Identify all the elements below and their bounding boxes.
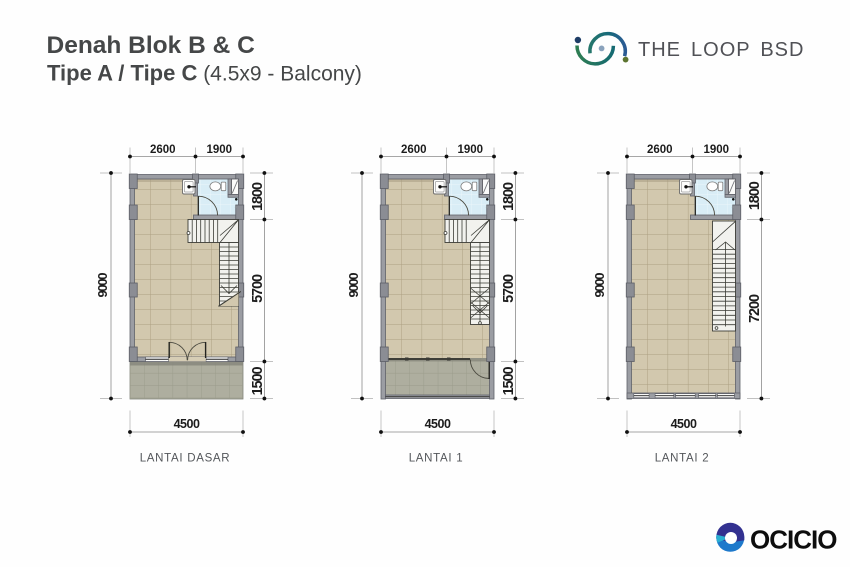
svg-text:Denah Blok B & C: Denah Blok B & C [47,32,256,59]
svg-text:2600: 2600 [647,144,673,156]
svg-text:LANTAI 1: LANTAI 1 [409,453,464,465]
svg-text:9000: 9000 [95,273,110,298]
svg-text:1900: 1900 [206,144,232,156]
svg-text:4500: 4500 [425,417,451,431]
svg-text:1800: 1800 [747,181,763,210]
svg-text:1800: 1800 [250,182,266,211]
svg-text:1500: 1500 [501,367,517,396]
svg-text:2600: 2600 [150,144,176,156]
svg-text:Tipe A / Tipe C (4.5x9 - Balco: Tipe A / Tipe C (4.5x9 - Balcony) [47,61,362,86]
svg-text:4500: 4500 [174,417,200,431]
svg-text:5700: 5700 [250,274,266,303]
svg-text:THE LOOP BSD: THE LOOP BSD [638,39,804,61]
svg-text:1900: 1900 [703,144,729,156]
svg-text:2600: 2600 [401,144,427,156]
svg-text:LANTAI DASAR: LANTAI DASAR [140,453,231,465]
svg-text:9000: 9000 [592,273,607,298]
svg-text:9000: 9000 [346,273,361,298]
svg-text:LANTAI 2: LANTAI 2 [655,453,710,465]
svg-text:7200: 7200 [747,294,763,323]
svg-text:4500: 4500 [671,417,697,431]
svg-text:OCICIO: OCICIO [750,525,837,555]
svg-text:5700: 5700 [501,274,517,303]
svg-text:1500: 1500 [250,367,266,396]
svg-text:1900: 1900 [457,144,483,156]
svg-text:1800: 1800 [501,182,517,211]
